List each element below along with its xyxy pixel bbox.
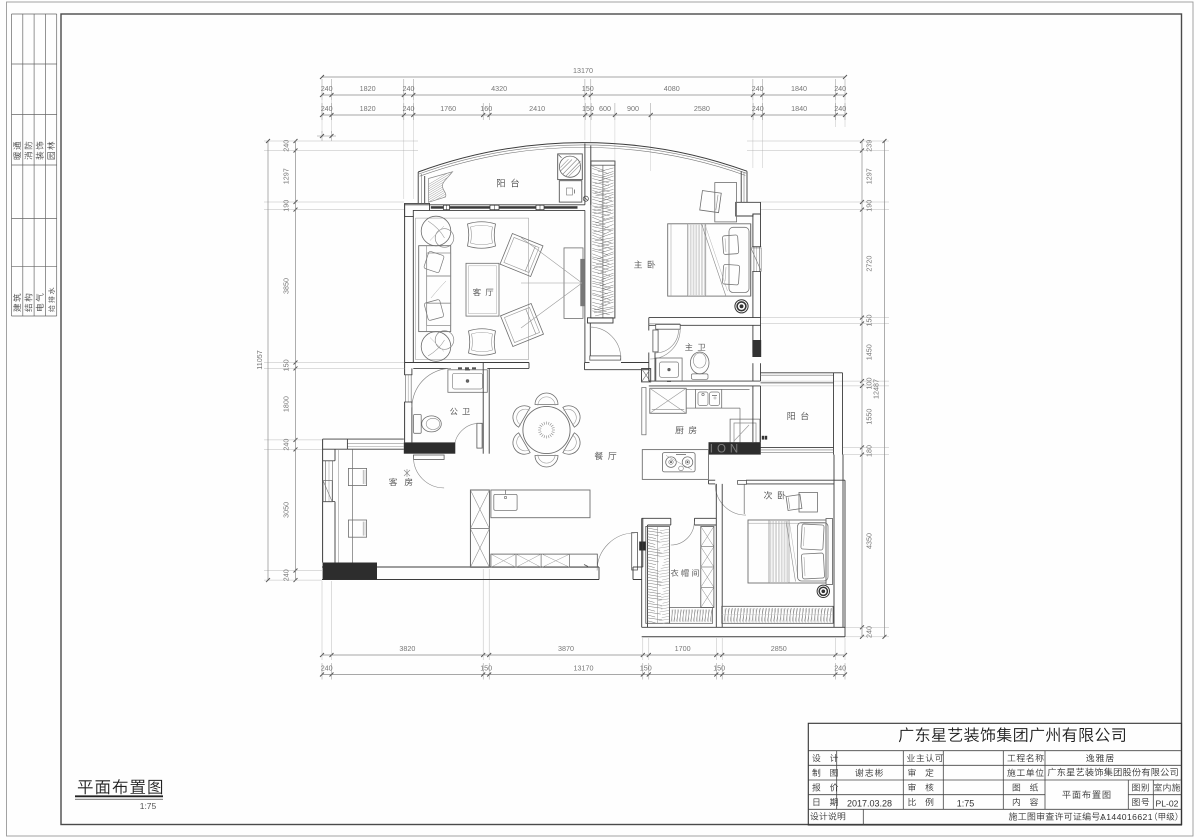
svg-text:150: 150 [480, 664, 492, 673]
svg-text:11057: 11057 [255, 350, 264, 369]
svg-text:240: 240 [282, 439, 291, 451]
svg-text:150: 150 [582, 104, 594, 113]
svg-text:240: 240 [834, 104, 846, 113]
svg-text:4350: 4350 [865, 533, 874, 549]
svg-text:240: 240 [834, 84, 846, 93]
svg-text:4080: 4080 [664, 84, 680, 93]
svg-text:150: 150 [640, 664, 652, 673]
svg-text:190: 190 [865, 200, 874, 212]
svg-text:150: 150 [713, 664, 725, 673]
svg-text:900: 900 [627, 104, 639, 113]
svg-text:240: 240 [321, 104, 333, 113]
svg-text:1297: 1297 [282, 168, 291, 184]
svg-text:1840: 1840 [791, 84, 807, 93]
svg-text:1760: 1760 [440, 104, 456, 113]
svg-text:2580: 2580 [694, 104, 710, 113]
svg-text:240: 240 [403, 84, 415, 93]
svg-text:2017.03.28: 2017.03.28 [847, 799, 892, 809]
svg-text:1840: 1840 [791, 104, 807, 113]
svg-text:13170: 13170 [573, 66, 593, 75]
svg-text:1820: 1820 [360, 104, 376, 113]
svg-text:3870: 3870 [558, 644, 574, 653]
svg-text:3050: 3050 [282, 502, 291, 518]
svg-text:4320: 4320 [491, 84, 507, 93]
svg-text:240: 240 [752, 84, 764, 93]
svg-text:2850: 2850 [771, 644, 787, 653]
svg-text:239: 239 [865, 140, 874, 152]
svg-text:1550: 1550 [865, 409, 874, 425]
svg-text:ION: ION [710, 444, 742, 456]
svg-text:190: 190 [282, 200, 291, 212]
svg-text:13170: 13170 [574, 664, 594, 673]
svg-text:240: 240 [834, 664, 846, 673]
svg-text:150: 150 [865, 315, 874, 327]
svg-text:240: 240 [752, 104, 764, 113]
svg-text:150: 150 [582, 84, 594, 93]
svg-text:1700: 1700 [675, 644, 691, 653]
svg-text:240: 240 [321, 84, 333, 93]
svg-text:240: 240 [321, 664, 333, 673]
svg-text:12487: 12487 [872, 379, 881, 399]
svg-text:240: 240 [403, 104, 415, 113]
svg-text:1:75: 1:75 [140, 801, 157, 811]
svg-text:160: 160 [480, 104, 492, 113]
svg-text:1:75: 1:75 [957, 799, 975, 809]
svg-text:3850: 3850 [282, 278, 291, 294]
svg-text:150: 150 [282, 359, 291, 371]
svg-text:2410: 2410 [529, 104, 545, 113]
svg-text:PL-02: PL-02 [1156, 798, 1179, 808]
svg-text:240: 240 [865, 626, 874, 638]
svg-text:1297: 1297 [865, 168, 874, 184]
svg-text:180: 180 [865, 445, 874, 457]
svg-text:1820: 1820 [360, 84, 376, 93]
svg-text:1800: 1800 [282, 396, 291, 412]
svg-text:2720: 2720 [865, 256, 874, 272]
svg-text:240: 240 [282, 569, 291, 581]
svg-text:3820: 3820 [399, 644, 415, 653]
svg-text:240: 240 [282, 140, 291, 152]
svg-text:A144016621: A144016621 [1100, 812, 1153, 822]
svg-text:1450: 1450 [865, 344, 874, 360]
svg-text:600: 600 [599, 104, 611, 113]
